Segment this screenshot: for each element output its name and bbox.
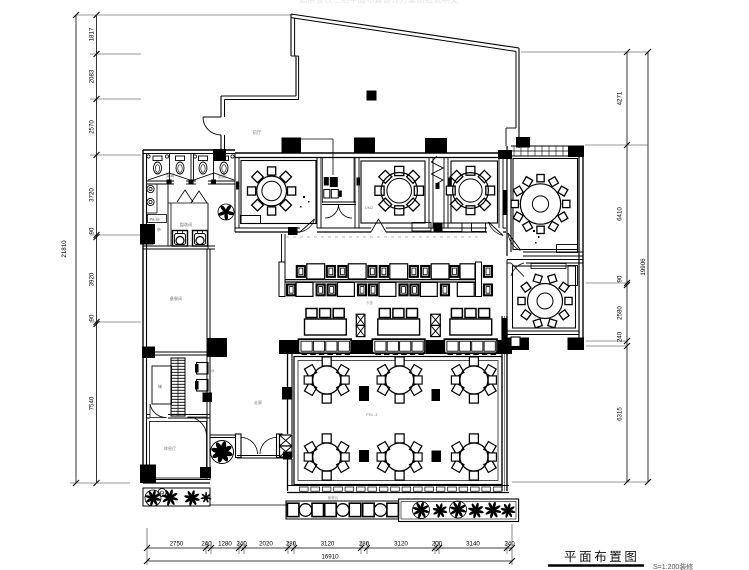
svg-text:240: 240	[504, 541, 515, 548]
svg-text:280: 280	[359, 541, 370, 548]
svg-text:梯: 梯	[158, 383, 162, 389]
svg-text:女厕: 女厕	[166, 172, 174, 178]
svg-text:DM2: DM2	[365, 206, 373, 210]
svg-text:男厕: 男厕	[218, 173, 226, 179]
svg-text:3120: 3120	[394, 541, 408, 548]
svg-text:备餐台: 备餐台	[328, 495, 339, 500]
svg-text:1817: 1817	[89, 27, 96, 41]
svg-text:280: 280	[286, 541, 297, 548]
svg-text:90: 90	[89, 227, 96, 234]
svg-text:16910: 16910	[321, 554, 339, 561]
svg-text:2580: 2580	[617, 306, 624, 320]
svg-text:4271: 4271	[617, 91, 624, 105]
svg-text:Pa.ss: Pa.ss	[150, 217, 160, 222]
svg-text:3720: 3720	[89, 188, 96, 202]
svg-text:6315: 6315	[617, 407, 624, 421]
svg-text:2083: 2083	[89, 69, 96, 83]
svg-text:90: 90	[89, 314, 96, 321]
svg-text:走廊: 走廊	[254, 399, 262, 405]
svg-text:90: 90	[617, 275, 624, 282]
svg-text:杂: 杂	[157, 226, 161, 232]
svg-text:卡座: 卡座	[366, 300, 374, 305]
svg-text:21810: 21810	[61, 240, 68, 258]
svg-text:酒店餐饮二层平面布置设计方案图纸说明文: 酒店餐饮二层平面布置设计方案图纸说明文	[299, 0, 458, 5]
svg-text:3920: 3920	[89, 272, 96, 286]
svg-text:平面布置图: 平面布置图	[564, 550, 640, 564]
svg-text:2750: 2750	[170, 541, 184, 548]
svg-text:休息厅: 休息厅	[164, 445, 177, 452]
svg-text:3120: 3120	[321, 541, 335, 548]
svg-text:S=1:200装修: S=1:200装修	[653, 562, 693, 570]
svg-text:19906: 19906	[640, 258, 647, 276]
svg-text:6410: 6410	[617, 207, 624, 221]
svg-text:2570: 2570	[89, 120, 96, 134]
svg-text:1280: 1280	[218, 541, 232, 548]
svg-text:休: 休	[211, 368, 215, 373]
svg-text:240: 240	[236, 541, 247, 548]
svg-text:前厅: 前厅	[253, 129, 262, 136]
svg-text:3140: 3140	[466, 541, 480, 548]
svg-text:240: 240	[617, 331, 624, 342]
svg-text:备餐间: 备餐间	[170, 295, 183, 302]
svg-text:240: 240	[201, 541, 212, 548]
svg-text:7540: 7540	[89, 396, 96, 410]
svg-text:盥洗间: 盥洗间	[180, 221, 193, 228]
svg-text:PDL-3: PDL-3	[366, 412, 378, 417]
svg-text:2020: 2020	[259, 541, 273, 548]
svg-text:200: 200	[432, 541, 443, 548]
